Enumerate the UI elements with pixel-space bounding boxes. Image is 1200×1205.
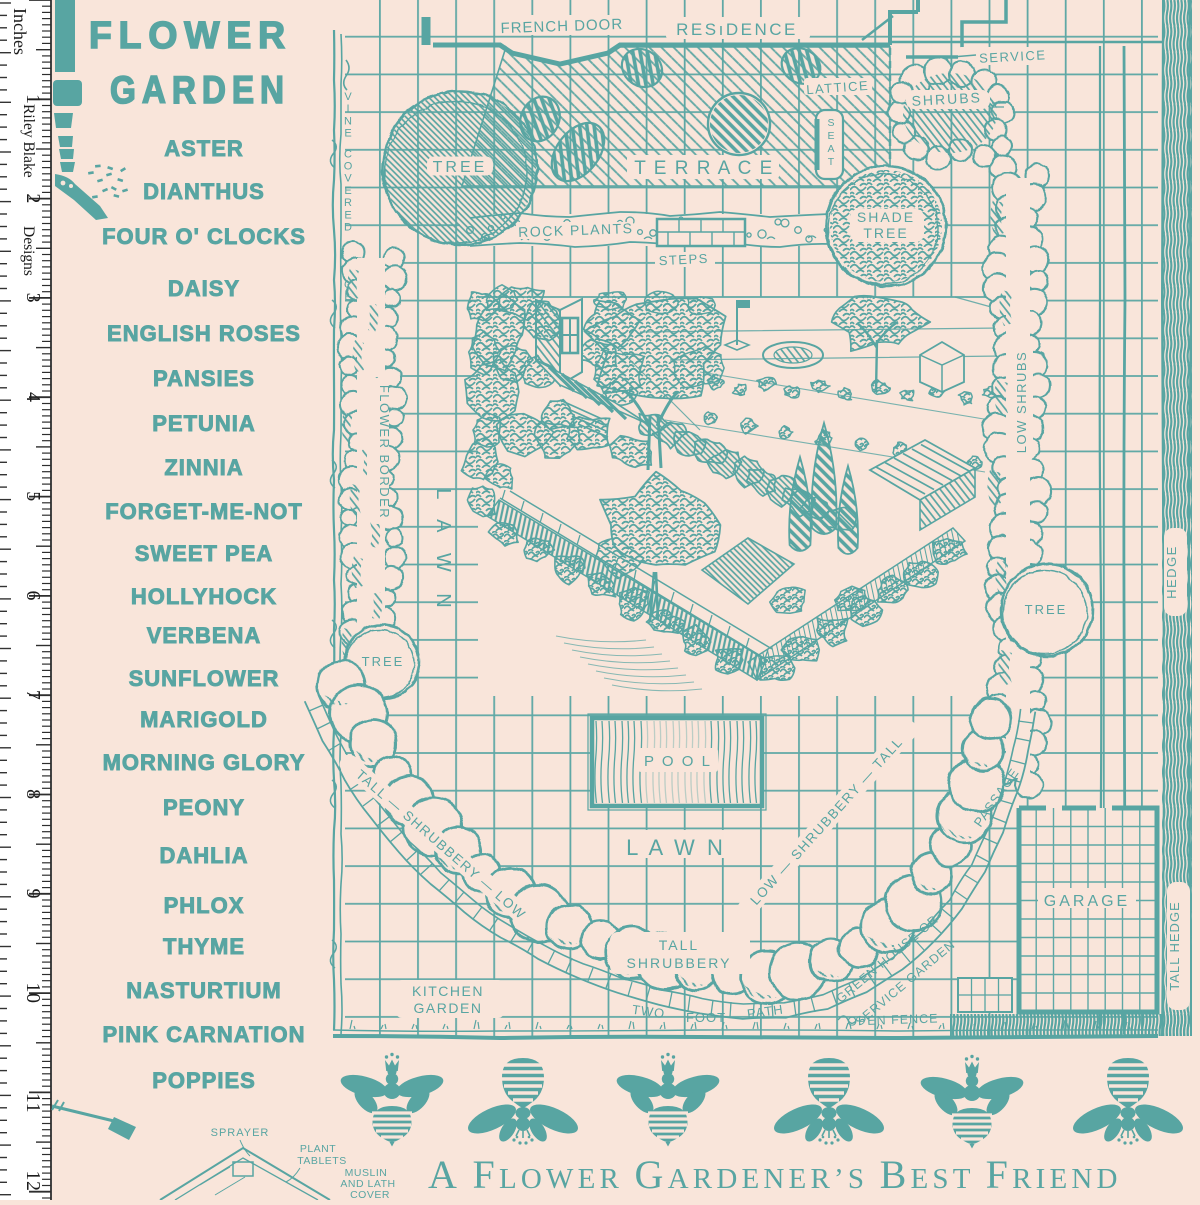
svg-text:LOW SHRUBS: LOW SHRUBS [1014,351,1029,453]
svg-text:TREE: TREE [433,159,488,176]
svg-text:FORGET-ME-NOT: FORGET-ME-NOT [105,499,303,524]
svg-text:KITCHEN: KITCHEN [412,983,484,999]
svg-text:SWEET PEA: SWEET PEA [135,541,274,566]
svg-text:FOUR O' CLOCKS: FOUR O' CLOCKS [102,224,306,249]
svg-text:DAISY: DAISY [168,276,240,301]
svg-text:10: 10 [22,983,44,1004]
svg-text:GARDEN: GARDEN [110,69,290,112]
svg-text:T E R R A C E: T E R R A C E [634,158,774,179]
svg-text:DIANTHUS: DIANTHUS [143,179,265,204]
svg-text:GARAGE: GARAGE [1044,893,1130,910]
svg-text:ASTER: ASTER [164,136,244,161]
svg-text:7: 7 [22,690,44,701]
svg-text:5: 5 [22,491,44,502]
svg-text:3: 3 [22,293,44,304]
svg-text:PANSIES: PANSIES [153,366,255,391]
svg-text:TABLETS: TABLETS [297,1155,346,1167]
svg-text:SHADE: SHADE [857,209,915,225]
svg-text:ZINNIA: ZINNIA [164,455,243,480]
svg-text:SPRAYER: SPRAYER [211,1127,270,1139]
svg-text:4: 4 [22,392,44,403]
svg-text:PETUNIA: PETUNIA [152,411,256,436]
svg-text:TREE: TREE [1025,602,1068,617]
svg-text:DAHLIA: DAHLIA [159,843,248,868]
svg-text:FLOWER: FLOWER [89,15,292,57]
svg-text:TALL: TALL [659,937,699,953]
svg-text:THYME: THYME [163,934,245,959]
svg-text:VERBENA: VERBENA [147,623,262,648]
svg-text:ENGLISH ROSES: ENGLISH ROSES [107,321,301,346]
svg-text:2: 2 [22,193,44,204]
svg-text:FLOWER BORDER: FLOWER BORDER [377,385,392,519]
svg-text:Riley Blake: Riley Blake [20,104,37,178]
svg-text:SUNFLOWER: SUNFLOWER [129,666,280,691]
svg-text:SEAT: SEAT [827,117,834,168]
svg-text:1: 1 [22,94,44,105]
svg-text:HEDGE: HEDGE [1164,545,1179,599]
svg-text:12: 12 [22,1171,44,1192]
svg-text:RESıDENCE: RESıDENCE [676,20,798,39]
svg-text:Designs: Designs [20,226,37,276]
svg-text:MORNING GLORY: MORNING GLORY [103,750,306,775]
svg-text:11: 11 [22,1093,44,1113]
svg-text:PEONY: PEONY [163,795,245,820]
svg-text:TREE: TREE [863,225,908,241]
svg-text:L A W N: L A W N [432,488,454,616]
svg-text:NASTURTIUM: NASTURTIUM [126,978,281,1003]
svg-text:6: 6 [22,591,44,602]
svg-text:FOOT: FOOT [686,1010,726,1025]
svg-text:COVER: COVER [350,1189,390,1200]
svg-text:HOLLYHOCK: HOLLYHOCK [131,584,277,609]
svg-text:GARDEN: GARDEN [414,1000,483,1016]
svg-text:L A W N: L A W N [626,835,726,860]
svg-text:TREE: TREE [362,654,405,669]
svg-text:TALL HEDGE: TALL HEDGE [1167,901,1182,990]
svg-text:PLANT: PLANT [300,1143,336,1155]
svg-text:SHRUBBERY: SHRUBBERY [627,955,732,971]
svg-text:P O O L: P O O L [644,753,712,770]
svg-text:Inches: Inches [10,8,30,55]
svg-text:POPPIES: POPPIES [152,1068,256,1093]
svg-text:PHLOX: PHLOX [164,893,245,918]
svg-text:8: 8 [22,789,44,800]
svg-text:9: 9 [22,888,44,899]
svg-text:MARIGOLD: MARIGOLD [140,707,268,732]
svg-text:PINK CARNATION: PINK CARNATION [102,1022,305,1047]
svg-text:STEPS: STEPS [658,251,709,269]
